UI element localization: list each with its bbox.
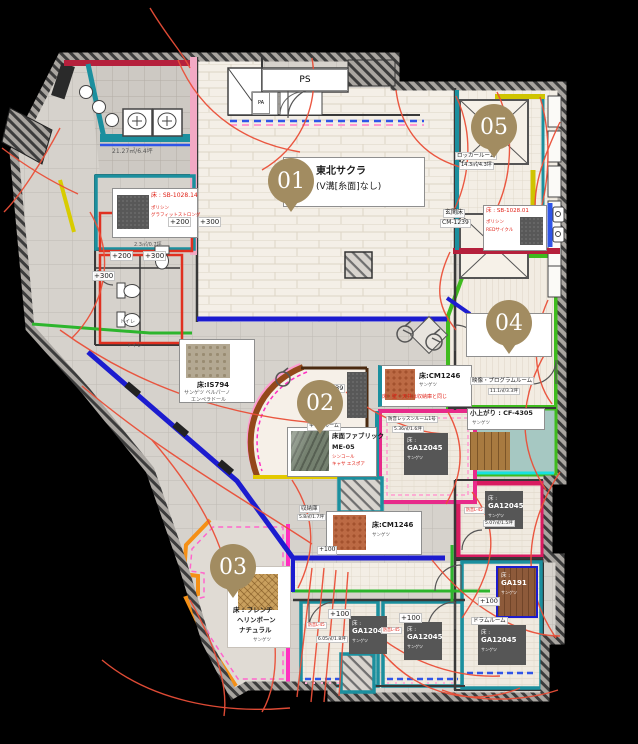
crimson-band-left xyxy=(64,60,194,66)
ga-floor-prefix: 床 : xyxy=(488,494,497,502)
zone-badge-03[interactable]: 03 xyxy=(210,544,256,590)
herringbone-maker: サンゲツ xyxy=(253,638,271,643)
ga-floor-code: GA12045 xyxy=(488,502,524,510)
herringbone-line3: ナチュラル xyxy=(239,627,272,634)
sb01-swatch xyxy=(520,217,543,245)
cm1246-title: 床:CM1246 xyxy=(419,372,460,380)
sb14-maker: ポリシン xyxy=(151,206,169,211)
is794-maker: サンゲツ ベルパーノ xyxy=(184,391,230,397)
sb14-swatch xyxy=(117,195,149,229)
level-plus300: +300 xyxy=(92,271,115,281)
hall-floor-name: 東北サクラ xyxy=(316,166,366,178)
genkan-floor-code: CM-1239 xyxy=(440,219,471,228)
level-plus300: +300 xyxy=(143,251,166,261)
ga-floor-prefix: 床 : xyxy=(501,571,510,579)
sb14-title: 床 : SB-1028.14 xyxy=(151,193,198,200)
ga-floor-maker: サンゲツ xyxy=(481,647,497,653)
ga191-code: GA191 xyxy=(501,579,527,587)
soundproof-spec: 防音L-45 xyxy=(381,627,402,634)
cm1246-maker: サンゲツ xyxy=(372,533,390,538)
lessonA-area: 6.05㎡/1.8坪 xyxy=(316,636,348,643)
herringbone-line2: ヘリンボーン xyxy=(237,617,276,624)
ga-floor-code: GA12045 xyxy=(481,636,517,644)
ga-floor-code: GA12045 xyxy=(407,633,443,641)
storage-name: 収納庫 xyxy=(299,505,320,513)
herringbone-line1: 床 : フレンチ xyxy=(233,607,273,614)
level-plus100: +100 xyxy=(328,609,351,619)
locker-column xyxy=(548,96,561,297)
level-plus100: +100 xyxy=(317,546,337,555)
wc-area-label: 2.3㎡/0.7坪 xyxy=(134,243,162,249)
cm1246-maker: サンゲツ xyxy=(419,383,437,388)
koagari-title: 小上がり : CF-4305 xyxy=(470,410,533,417)
cm1246-title: 床:CM1246 xyxy=(372,521,413,529)
ga191-swatch: 床 : GA191 サンゲツ xyxy=(496,566,538,618)
pa-shaft-label: PA xyxy=(252,92,270,114)
level-plus200: +200 xyxy=(110,251,133,261)
ga-floor-maker: サンゲツ xyxy=(501,590,517,596)
zone-badge-05[interactable]: 05 xyxy=(471,104,517,150)
ga-floor-prefix: 床 : xyxy=(481,628,490,636)
fabric-title: 床面ファブリック xyxy=(332,433,384,440)
soundproof-spec: 防音L-45 xyxy=(306,622,327,629)
level-plus100: +100 xyxy=(399,613,422,623)
lesson1-area: 5.36㎡/1.6坪 xyxy=(392,426,424,433)
zone-badge-02[interactable]: 02 xyxy=(297,380,343,426)
level-plus200: +200 xyxy=(168,217,191,227)
ga-floor-prefix: 床 : xyxy=(352,619,361,627)
is794-swatch xyxy=(186,344,230,378)
floorplan-canvas xyxy=(0,0,638,744)
is794-title: 床:IS794 xyxy=(197,381,229,389)
ga12045-swatch: 床 : GA12045 サンゲツ xyxy=(404,433,448,475)
me05-swatch xyxy=(291,431,329,471)
drum-room-name: ドラムルーム xyxy=(471,617,508,625)
floorplan-screenshot: PS PA 21.27㎡/6.4坪 床 : SB-1028.14 ポリシン グラ… xyxy=(0,0,638,744)
washroom-area-label: 21.27㎡/6.4坪 xyxy=(112,149,153,156)
wc-label: トイレ xyxy=(127,344,142,350)
sb01-maker: ポリシン xyxy=(486,220,504,225)
ga12045-swatch: 床 : GA12045 サンゲツ xyxy=(349,616,387,654)
ga12045-swatch: 床 : GA12045 サンゲツ xyxy=(404,622,442,660)
sb01-title: 床 : SB-1028.01 xyxy=(486,208,529,214)
cf4305-swatch xyxy=(470,432,510,470)
genkan-floor-label: 玄関床 xyxy=(443,209,465,218)
wc-label: トイレ xyxy=(120,320,135,326)
ga-floor-prefix: 床 : xyxy=(407,436,416,444)
hall-floor-spec: (V溝[糸面]なし) xyxy=(316,182,381,192)
locker-room-area: 14.3㎡/4.3坪 xyxy=(459,162,494,170)
level-plus100: +100 xyxy=(478,597,500,606)
cm1246-note: 床・壁・天井は収納庫と同じ xyxy=(382,395,447,401)
is794-series: エンペラドール xyxy=(191,398,226,404)
ga-floor-maker: サンゲツ xyxy=(407,455,423,461)
zone-badge-01[interactable]: 01 xyxy=(268,158,314,204)
basin xyxy=(553,207,564,222)
soundproof-spec: 防音L-45 xyxy=(464,507,485,514)
ga-floor-maker: サンゲツ xyxy=(352,638,368,644)
pink2-area: 5.07㎡/1.5坪 xyxy=(483,520,515,527)
program-room-name: 映像・プログラムルーム xyxy=(470,377,534,385)
lesson1-name: 防音レッスンルーム1号 xyxy=(386,416,438,423)
ga-floor-prefix: 床 : xyxy=(407,625,416,633)
basin xyxy=(553,227,564,242)
zone-badge-04[interactable]: 04 xyxy=(486,300,532,346)
ps-shaft-label: PS xyxy=(262,69,348,91)
fabric-maker: シンコール xyxy=(332,455,355,460)
level-plus300: +300 xyxy=(198,217,221,227)
ga12045-swatch: 床 : GA12045 サンゲツ xyxy=(478,625,526,665)
ga-floor-code: GA12045 xyxy=(407,444,443,452)
ga-floor-maker: サンゲツ xyxy=(407,644,423,650)
koagari-maker: サンゲツ xyxy=(472,421,490,426)
storage-area: 5.8㎡/1.7坪 xyxy=(297,514,326,521)
program-room-area: 11.1㎡/3.3坪 xyxy=(488,388,520,395)
cm1246-swatch xyxy=(333,515,366,550)
fabric-series: キャサ エスポア xyxy=(332,462,365,467)
fabric-code: ME-05 xyxy=(332,444,355,451)
sb01-series: REDサイクル xyxy=(486,228,513,233)
ga-floor-maker: サンゲツ xyxy=(488,513,504,519)
partial-swatch xyxy=(347,372,367,418)
